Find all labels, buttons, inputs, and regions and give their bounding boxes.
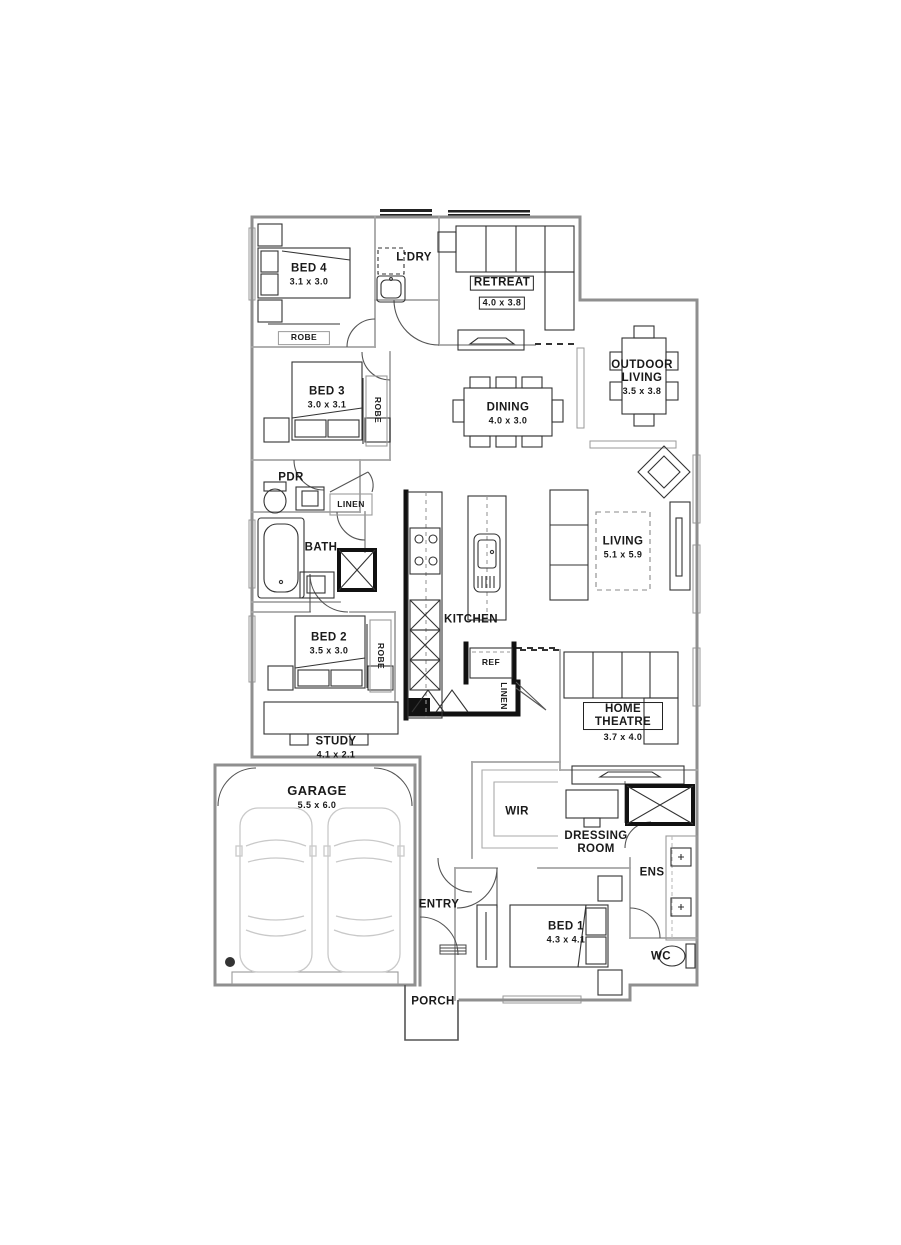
room-bed2: BED 2 3.5 x 3.0 bbox=[310, 632, 349, 657]
door-bed4 bbox=[347, 319, 375, 347]
room-porch: PORCH bbox=[411, 995, 455, 1008]
room-home-theatre-name: HOME THEATRE bbox=[583, 702, 663, 730]
porch-edge bbox=[405, 985, 458, 1040]
room-garage: GARAGE 5.5 x 6.0 bbox=[287, 784, 346, 810]
room-bed3: BED 3 3.0 x 3.1 bbox=[308, 386, 347, 411]
robe-bed3-label: ROBE bbox=[372, 397, 382, 423]
door-wc bbox=[630, 908, 660, 938]
room-bed1-name: BED 1 bbox=[547, 921, 586, 934]
room-retreat-dims: 4.0 x 3.8 bbox=[479, 297, 526, 309]
room-ldry-name: L'DRY bbox=[396, 251, 432, 264]
room-bed4-dims: 3.1 x 3.0 bbox=[290, 277, 329, 287]
room-wir-name: WIR bbox=[505, 805, 529, 818]
porch-outline bbox=[405, 985, 458, 1040]
room-entry: ENTRY bbox=[419, 898, 460, 911]
linen-pantry-label: LINEN bbox=[498, 682, 508, 710]
window-bar-retreat-1 bbox=[448, 210, 530, 213]
window-bar-ldry-1 bbox=[380, 209, 432, 212]
room-bed1: BED 1 4.3 x 4.1 bbox=[547, 921, 586, 946]
threshold bbox=[440, 945, 466, 954]
robe-bed4-label: ROBE bbox=[278, 331, 330, 345]
window-outdoor-left bbox=[577, 348, 584, 428]
room-study: STUDY 4.1 x 2.1 bbox=[316, 736, 357, 761]
room-dressing: DRESSING ROOM bbox=[557, 830, 635, 856]
room-ldry: L'DRY bbox=[396, 251, 432, 264]
retreat-tv-icon bbox=[458, 330, 524, 350]
room-entry-name: ENTRY bbox=[419, 898, 460, 911]
room-retreat: RETREAT 4.0 x 3.8 bbox=[470, 273, 534, 312]
door-bed1 bbox=[457, 868, 497, 908]
room-ens-name: ENS bbox=[640, 866, 665, 879]
dresser-icon bbox=[566, 790, 618, 827]
room-retreat-name: RETREAT bbox=[470, 276, 534, 291]
car-icon-1 bbox=[236, 808, 316, 972]
room-porch-name: PORCH bbox=[411, 995, 455, 1008]
garage-door bbox=[232, 972, 398, 984]
door-garage-left bbox=[218, 768, 256, 806]
room-home-theatre-dims: 3.7 x 4.0 bbox=[583, 732, 663, 742]
ens-vanity-icon bbox=[666, 836, 697, 940]
room-dining: DINING 4.0 x 3.0 bbox=[487, 402, 530, 427]
room-outdoor-living-name: OUTDOOR LIVING bbox=[607, 359, 677, 385]
bathtub-icon bbox=[258, 518, 304, 598]
room-study-dims: 4.1 x 2.1 bbox=[316, 750, 357, 760]
room-home-theatre: HOME THEATRE 3.7 x 4.0 bbox=[583, 702, 663, 742]
door-bath bbox=[337, 512, 365, 540]
threshold-lines bbox=[440, 948, 466, 951]
ens-shower-icon bbox=[627, 786, 693, 824]
pdr-toilet-icon bbox=[264, 482, 286, 513]
dashed-openings bbox=[516, 344, 578, 650]
car-icon-2 bbox=[324, 808, 404, 972]
room-living-dims: 5.1 x 5.9 bbox=[603, 550, 644, 560]
room-garage-name: GARAGE bbox=[287, 784, 346, 799]
living-armchair-icon bbox=[638, 446, 690, 498]
room-ens: ENS bbox=[640, 866, 665, 879]
room-wc-name: WC bbox=[651, 950, 671, 963]
room-garage-dims: 5.5 x 6.0 bbox=[287, 800, 346, 810]
room-living: LIVING 5.1 x 5.9 bbox=[603, 536, 644, 561]
linen-bath-label: LINEN bbox=[337, 500, 365, 510]
room-bed3-name: BED 3 bbox=[308, 386, 347, 399]
cars bbox=[236, 808, 404, 972]
meter-icon bbox=[225, 957, 235, 967]
room-wc: WC bbox=[651, 950, 671, 963]
living-tv-unit-icon bbox=[670, 502, 690, 590]
doors bbox=[218, 300, 660, 955]
room-outdoor-living-dims: 3.5 x 3.8 bbox=[607, 387, 677, 397]
room-pdr-name: PDR bbox=[278, 471, 303, 484]
room-dining-dims: 4.0 x 3.0 bbox=[487, 416, 530, 426]
room-outdoor-living: OUTDOOR LIVING 3.5 x 3.8 bbox=[607, 359, 677, 397]
room-bed4: BED 4 3.1 x 3.0 bbox=[290, 263, 329, 288]
pdr-basin-inner bbox=[302, 491, 318, 506]
ref-label: REF bbox=[482, 658, 500, 668]
floor-plan: BED 4 3.1 x 3.0 ROBE L'DRY RETREAT 4.0 x… bbox=[0, 0, 901, 1245]
room-kitchen: KITCHEN bbox=[444, 613, 498, 626]
room-dressing-name: DRESSING ROOM bbox=[557, 830, 635, 856]
door-linen bbox=[330, 472, 373, 492]
kitchen-bench-icon bbox=[408, 492, 442, 718]
room-study-name: STUDY bbox=[316, 736, 357, 749]
kitchen-island-icon bbox=[468, 496, 506, 620]
door-ldry bbox=[394, 300, 439, 345]
room-living-name: LIVING bbox=[603, 536, 644, 549]
room-bed1-dims: 4.3 x 4.1 bbox=[547, 935, 586, 945]
room-wir: WIR bbox=[505, 805, 529, 818]
room-bed3-dims: 3.0 x 3.1 bbox=[308, 400, 347, 410]
room-dining-name: DINING bbox=[487, 402, 530, 415]
room-pdr: PDR bbox=[278, 471, 303, 484]
robe-bed2-label: ROBE bbox=[375, 643, 385, 669]
pantry-corner-block bbox=[408, 698, 430, 713]
room-bed2-dims: 3.5 x 3.0 bbox=[310, 646, 349, 656]
room-bath: BATH bbox=[305, 541, 338, 554]
room-bed2-name: BED 2 bbox=[310, 632, 349, 645]
room-bath-name: BATH bbox=[305, 541, 338, 554]
room-kitchen-name: KITCHEN bbox=[444, 613, 498, 626]
living-sofa-icon bbox=[550, 490, 588, 600]
door-entry bbox=[420, 917, 458, 955]
bed1-mirror-icon bbox=[477, 905, 497, 967]
window-bars-dark bbox=[380, 209, 530, 217]
room-bed4-name: BED 4 bbox=[290, 263, 329, 276]
door-garage-right bbox=[374, 768, 412, 806]
entry-threshold bbox=[440, 945, 466, 954]
bath-shower-icon bbox=[339, 550, 375, 590]
dressing-bench-icon bbox=[572, 766, 684, 784]
